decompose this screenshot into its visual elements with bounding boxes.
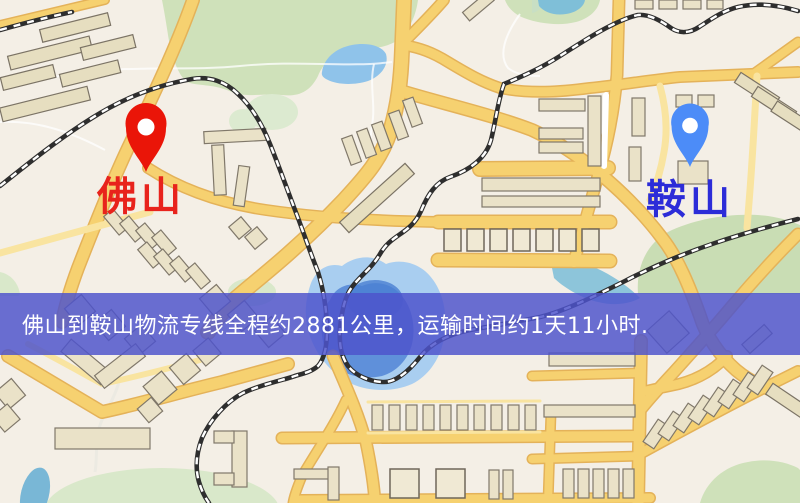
building (474, 405, 485, 430)
building (525, 405, 536, 430)
building (578, 469, 589, 498)
building (629, 147, 641, 181)
destination-pin-hole (682, 118, 698, 134)
road (604, 95, 606, 166)
building (593, 469, 604, 498)
building (372, 405, 383, 430)
building (559, 229, 576, 251)
building (482, 178, 600, 191)
building (214, 431, 234, 443)
building (513, 229, 530, 251)
building (390, 469, 419, 498)
building (508, 405, 519, 430)
building (489, 470, 499, 499)
building (467, 229, 484, 251)
building (539, 142, 583, 153)
origin-label: 佛山 (96, 173, 185, 220)
building (635, 0, 653, 9)
map-image: 佛山 鞍山 佛山到鞍山物流专线全程约2881公里，运输时间约1天11小时. (0, 0, 800, 503)
road (368, 432, 540, 433)
building (328, 467, 339, 500)
building (214, 473, 234, 485)
building (632, 98, 645, 136)
building (659, 0, 677, 9)
building (539, 99, 585, 111)
building (423, 405, 434, 430)
building (563, 469, 574, 498)
building (539, 128, 583, 139)
building (544, 405, 635, 417)
building (582, 229, 599, 251)
building (212, 145, 227, 196)
route-info-banner: 佛山到鞍山物流专线全程约2881公里，运输时间约1天11小时. (0, 293, 800, 355)
building (482, 196, 600, 207)
building (588, 96, 601, 166)
origin-pin-hole (138, 119, 155, 136)
map-canvas: 佛山 鞍山 (0, 0, 800, 503)
building (503, 470, 513, 499)
building (536, 229, 553, 251)
building (440, 405, 451, 430)
route-info-text: 佛山到鞍山物流专线全程约2881公里，运输时间约1天11小时. (22, 308, 648, 340)
building (55, 428, 150, 449)
building (707, 0, 723, 9)
road (368, 401, 540, 402)
building (204, 128, 267, 143)
building (491, 405, 502, 430)
building (406, 405, 417, 430)
building (698, 95, 714, 107)
building (457, 405, 468, 430)
building (608, 469, 619, 498)
building (490, 229, 507, 251)
building (389, 405, 400, 430)
building (436, 469, 465, 498)
building (683, 0, 701, 9)
building (623, 469, 634, 498)
destination-label: 鞍山 (646, 176, 734, 223)
building (444, 229, 461, 251)
